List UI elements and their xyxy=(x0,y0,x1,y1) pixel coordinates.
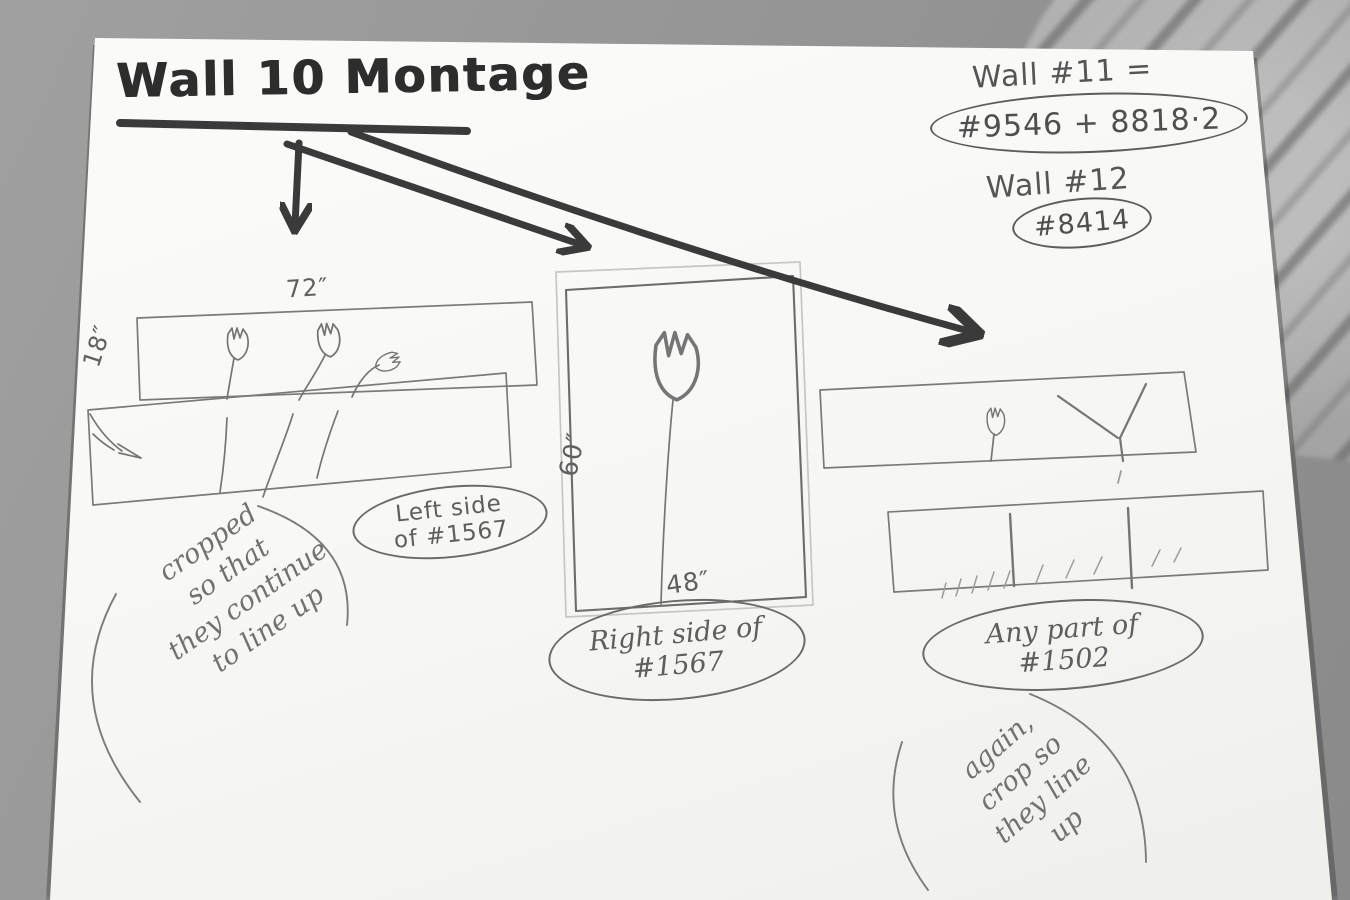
tulip-icon xyxy=(987,408,1005,435)
right-bottom-frame xyxy=(888,491,1268,592)
center-frame-ghost xyxy=(556,262,813,617)
tulip-icon xyxy=(655,333,698,400)
arrow-to-right-frames xyxy=(351,132,972,332)
grass-hatch-icon xyxy=(942,548,1181,598)
flower-bud-icon xyxy=(372,350,402,375)
page-title: Wall 10 Montage xyxy=(116,46,591,109)
tulip-icon xyxy=(317,322,342,357)
center-frame xyxy=(566,276,806,611)
arrow-to-left-frames xyxy=(295,143,299,225)
width-label-72in: 72″ xyxy=(285,273,329,304)
width-label-48in: 48″ xyxy=(664,565,712,600)
tulip-icon xyxy=(227,328,248,360)
leaf-sketch-icon xyxy=(90,414,141,458)
branch-sketch-icon xyxy=(1058,384,1146,461)
center-caption-line2: #1567 xyxy=(632,646,726,685)
photo-of-sketch: Wall 10 Montage Wall #11 = #9546 + 8818·… xyxy=(0,0,1350,900)
wall-12-numbers: #8414 xyxy=(1033,203,1132,242)
wall-11-numbers: #9546 + 8818·2 xyxy=(956,101,1222,145)
title-underline xyxy=(120,123,467,131)
right-top-frame xyxy=(820,372,1196,468)
